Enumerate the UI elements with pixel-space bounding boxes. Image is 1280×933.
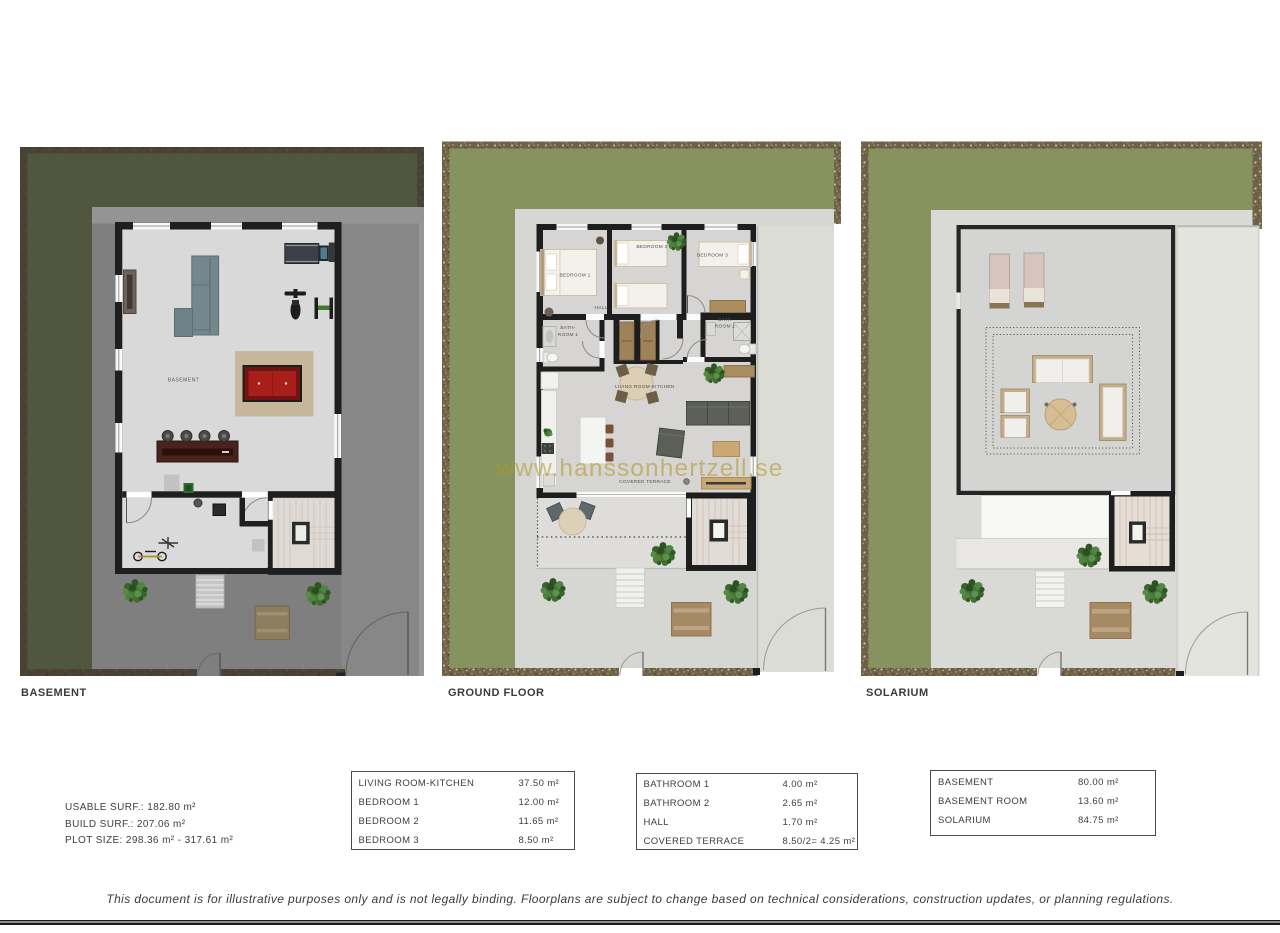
svg-text:BATH: BATH — [718, 317, 732, 323]
svg-text:ROOM 1: ROOM 1 — [558, 332, 579, 338]
svg-text:BEDROOM 2: BEDROOM 2 — [636, 244, 667, 250]
svg-text:BATH-: BATH- — [560, 325, 575, 331]
svg-text:ROOM 2: ROOM 2 — [715, 324, 736, 330]
svg-text:LIVING ROOM-KITCHEN: LIVING ROOM-KITCHEN — [615, 384, 675, 390]
svg-text:HALL: HALL — [595, 305, 608, 311]
svg-text:BEDROOM 1: BEDROOM 1 — [559, 273, 590, 279]
svg-text:BEDROOM 3: BEDROOM 3 — [697, 253, 728, 259]
svg-text:BASEMENT: BASEMENT — [168, 378, 200, 384]
